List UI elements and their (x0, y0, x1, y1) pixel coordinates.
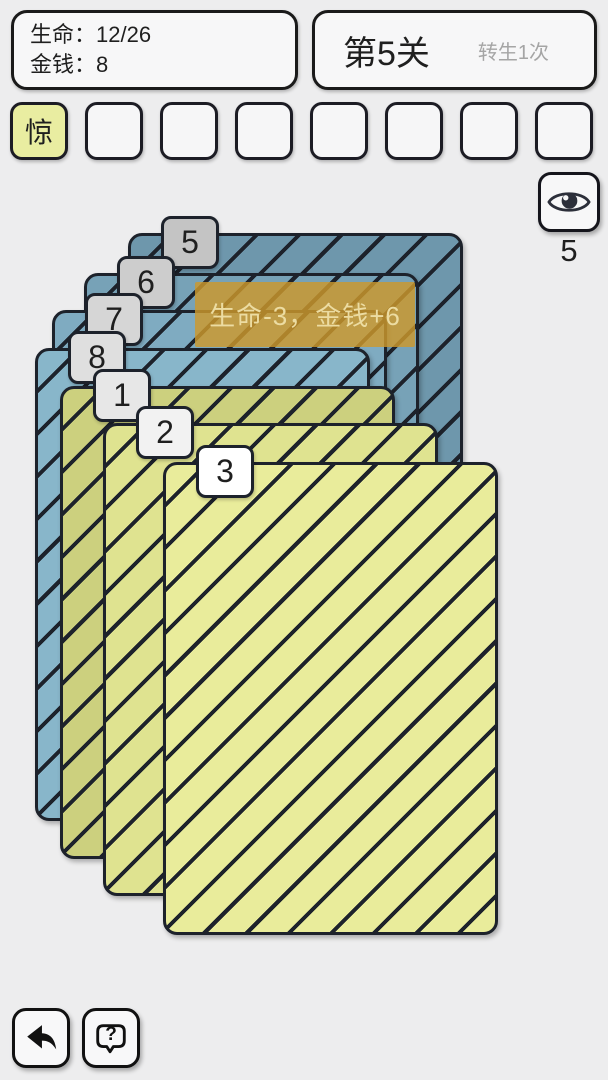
level-panel: 第5关 转生1次 (312, 10, 597, 90)
life-stat: 生命：12/26 (30, 24, 295, 46)
money-value: 8 (96, 52, 108, 77)
card-tab-2[interactable]: 2 (136, 406, 194, 459)
card-3[interactable]: 3 (163, 462, 498, 935)
inventory-slot-4[interactable] (235, 102, 293, 160)
slot-label: 惊 (25, 111, 53, 151)
life-value: 12/26 (96, 22, 151, 47)
inventory-slot-5[interactable] (310, 102, 368, 160)
card-effect-banner: 生命-3，金钱+6 (195, 282, 415, 347)
game-screen: 生命：12/26 金钱：8 第5关 转生1次 惊 5 5 6 7 (0, 0, 608, 1080)
back-arrow-icon (22, 1019, 60, 1057)
stats-panel: 生命：12/26 金钱：8 (11, 10, 298, 90)
life-label: 生命： (30, 22, 96, 47)
inventory-slot-3[interactable] (160, 102, 218, 160)
inventory-slot-6[interactable] (385, 102, 443, 160)
rebirth-note: 转生1次 (478, 36, 549, 65)
peek-count: 5 (538, 233, 600, 269)
inventory-slot-8[interactable] (535, 102, 593, 160)
inventory-slot-1[interactable]: 惊 (10, 102, 68, 160)
money-label: 金钱： (30, 52, 96, 77)
help-button[interactable]: ? (82, 1008, 140, 1068)
card-tab-3[interactable]: 3 (196, 445, 254, 498)
back-button[interactable] (12, 1008, 70, 1068)
money-stat: 金钱：8 (30, 54, 295, 76)
card-face[interactable] (163, 462, 498, 935)
eye-icon (547, 187, 591, 217)
peek-button[interactable] (538, 172, 600, 232)
level-title: 第5关 (343, 26, 430, 75)
inventory-slot-2[interactable] (85, 102, 143, 160)
inventory-slot-7[interactable] (460, 102, 518, 160)
help-question-glyph: ? (105, 1024, 117, 1046)
